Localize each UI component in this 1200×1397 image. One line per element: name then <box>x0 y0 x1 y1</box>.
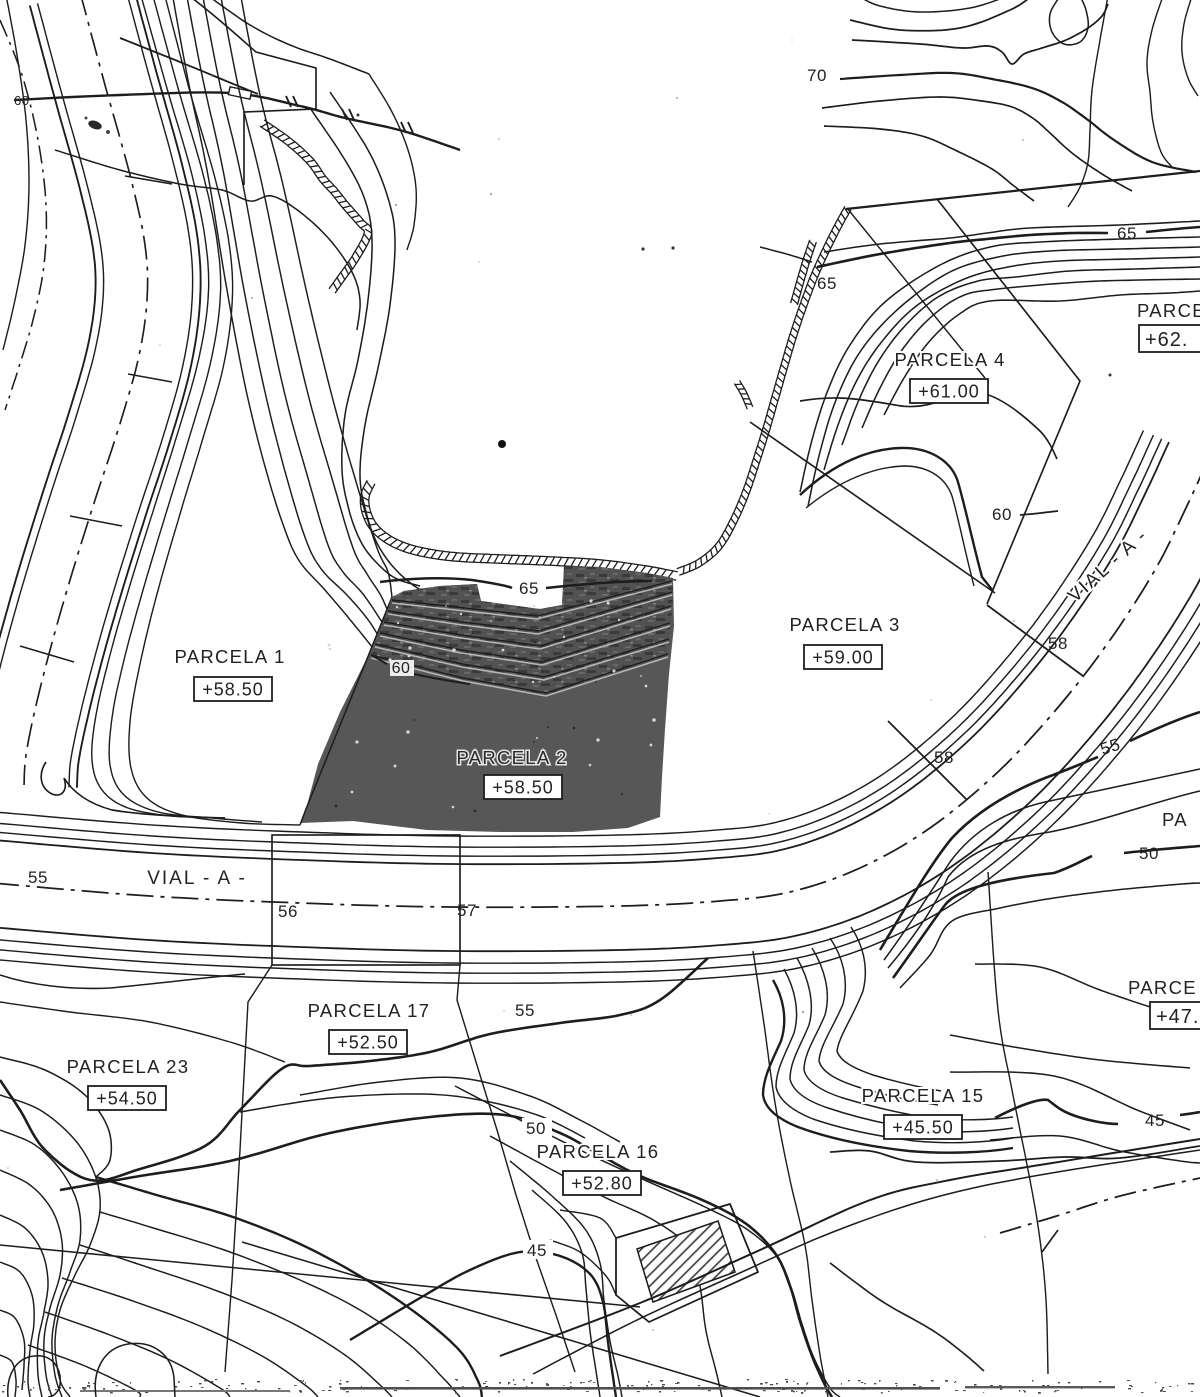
svg-text:65: 65 <box>519 579 539 598</box>
svg-text:PA: PA <box>1162 809 1188 830</box>
svg-text:PARCE: PARCE <box>1128 977 1197 998</box>
svg-text:PARCELA 2: PARCELA 2 <box>456 747 567 768</box>
svg-text:60: 60 <box>14 93 29 108</box>
svg-text:PARCE: PARCE <box>1137 300 1200 321</box>
svg-text:50: 50 <box>1139 844 1159 863</box>
svg-text:PARCELA 3: PARCELA 3 <box>789 614 900 635</box>
svg-text:58: 58 <box>1048 634 1068 653</box>
svg-text:45: 45 <box>527 1241 547 1260</box>
svg-text:PARCELA 4: PARCELA 4 <box>894 349 1005 370</box>
svg-text:PARCELA 1: PARCELA 1 <box>174 646 285 667</box>
svg-text:65: 65 <box>817 274 837 293</box>
svg-text:+59.00: +59.00 <box>812 647 874 667</box>
svg-text:+61.00: +61.00 <box>918 381 980 401</box>
svg-text:45: 45 <box>1145 1111 1165 1130</box>
svg-text:55: 55 <box>515 1001 535 1020</box>
svg-text:57: 57 <box>457 901 477 920</box>
svg-text:+45.50: +45.50 <box>892 1117 954 1137</box>
svg-text:50: 50 <box>526 1119 546 1138</box>
svg-text:PARCELA 23: PARCELA 23 <box>67 1056 190 1077</box>
svg-text:56: 56 <box>278 902 298 921</box>
svg-text:+54.50: +54.50 <box>96 1088 158 1108</box>
svg-text:70: 70 <box>807 66 827 85</box>
svg-text:58: 58 <box>934 748 954 767</box>
svg-text:VIAL - A -: VIAL - A - <box>147 868 247 889</box>
svg-text:+52.50: +52.50 <box>337 1032 399 1052</box>
svg-text:PARCELA 15: PARCELA 15 <box>862 1085 985 1106</box>
svg-text:+62.: +62. <box>1145 329 1188 351</box>
svg-text:+58.50: +58.50 <box>202 679 264 699</box>
svg-text:+58.50: +58.50 <box>492 777 554 797</box>
svg-text:PARCELA 17: PARCELA 17 <box>308 1000 431 1021</box>
svg-text:+52.80: +52.80 <box>571 1173 633 1193</box>
svg-text:65: 65 <box>1117 224 1137 243</box>
svg-text:+47.: +47. <box>1156 1006 1199 1028</box>
svg-text:60: 60 <box>392 660 411 677</box>
svg-text:60: 60 <box>992 505 1012 524</box>
svg-text:55: 55 <box>28 868 48 887</box>
svg-text:PARCELA 16: PARCELA 16 <box>537 1141 660 1162</box>
